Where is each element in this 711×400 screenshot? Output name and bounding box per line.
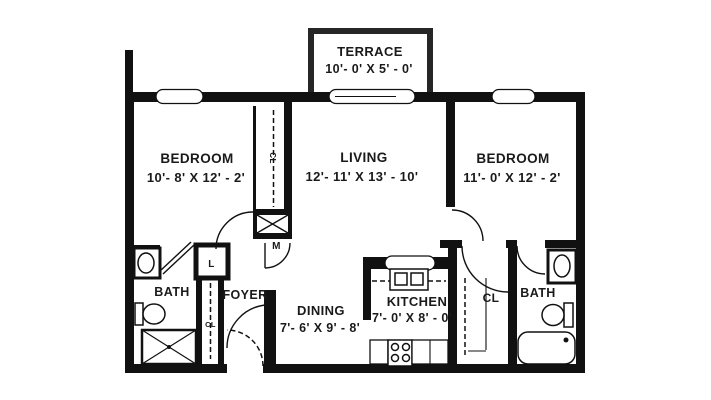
window-bedroom-left	[156, 90, 203, 104]
door-leaf-bath-left-2	[163, 245, 194, 274]
kitchen-counter-left	[370, 340, 388, 364]
wall-closet-bathright	[508, 240, 517, 373]
closet-hall-label: CL	[205, 320, 216, 329]
bath-right-label: BATH	[520, 286, 555, 300]
door-arc-entry	[227, 305, 266, 348]
door-arc-closet-right	[462, 246, 508, 292]
toilet-tank-right	[564, 303, 573, 327]
left-wall-stub	[125, 50, 133, 94]
stove-burner-2	[403, 344, 410, 351]
sink-left-icon	[138, 253, 154, 273]
mech-shaft-right	[288, 209, 292, 239]
bathtub-faucet	[564, 338, 569, 343]
entry-opening	[227, 363, 263, 374]
kitchen-dims: 7'- 0' X 8' - 0'	[372, 311, 452, 325]
bedroom-left-dims: 10'- 8' X 12' - 2'	[147, 170, 245, 185]
mech-shaft-bottom	[253, 233, 292, 239]
dining-dims: 7'- 6' X 9' - 8'	[280, 321, 360, 335]
kitchen-sink-basin-2	[411, 273, 423, 285]
stove-burner-3	[392, 355, 399, 362]
stove-burner-1	[392, 344, 399, 351]
door-arc-bath-right	[517, 246, 545, 274]
wall-bedroomright-bottom-c	[545, 240, 576, 248]
door-arc-entry-dashed	[227, 330, 263, 366]
stove-burner-4	[403, 355, 410, 362]
bedroom-right-dims: 11'- 0' X 12' - 2'	[463, 170, 561, 185]
toilet-left-icon	[143, 304, 165, 324]
living-label: LIVING	[340, 150, 387, 165]
bath-left-label: BATH	[154, 285, 189, 299]
mech-shaft-top	[253, 209, 292, 215]
wall-living-bedroomright	[446, 100, 455, 207]
kitchen-passthrough	[385, 256, 435, 270]
door-leaf-bath-left-1	[160, 242, 191, 271]
terrace: TERRACE 10'- 0' X 5' - 0'	[311, 31, 430, 97]
kitchen-sink-basin-1	[395, 273, 407, 285]
terrace-label: TERRACE	[337, 44, 403, 59]
bedroom-right-label: BEDROOM	[476, 151, 549, 166]
closet-right-label: CL	[483, 291, 500, 305]
dining-label: DINING	[297, 303, 345, 318]
closet-bedroom-left-label: CL	[268, 152, 277, 163]
shower-drain	[167, 345, 171, 349]
living-dims: 12'- 11' X 13' - 10'	[306, 169, 419, 184]
mechanical-closet-label: M	[272, 241, 281, 252]
toilet-tank-left	[135, 303, 143, 325]
sink-right-icon	[554, 255, 570, 277]
terrace-dims: 10'- 0' X 5' - 0'	[325, 62, 412, 76]
foyer-label: FOYER	[222, 288, 267, 302]
bathtub-fixture	[518, 332, 575, 364]
floor-plan: TERRACE 10'- 0' X 5' - 0'	[0, 0, 711, 400]
closet-bedroomleft-wall	[253, 106, 256, 211]
right-wall	[576, 92, 585, 373]
wall-kitchen-right	[448, 240, 457, 373]
door-arc-bedroom-right	[452, 210, 483, 241]
wall-bedroomleft-living	[284, 100, 292, 213]
toilet-right-icon	[542, 305, 564, 326]
kitchen-label: KITCHEN	[387, 294, 448, 309]
wall-foyer-dining	[264, 290, 276, 373]
bedroom-left-label: BEDROOM	[160, 151, 233, 166]
left-wall	[125, 92, 134, 373]
mech-shaft-left	[253, 209, 257, 239]
wall-bedroomright-bottom-a	[455, 240, 462, 248]
wall-living-corner	[440, 240, 457, 248]
wall-dining-kitchen	[363, 263, 371, 320]
window-bedroom-right	[492, 90, 535, 104]
linen-closet-label: L	[208, 259, 215, 270]
